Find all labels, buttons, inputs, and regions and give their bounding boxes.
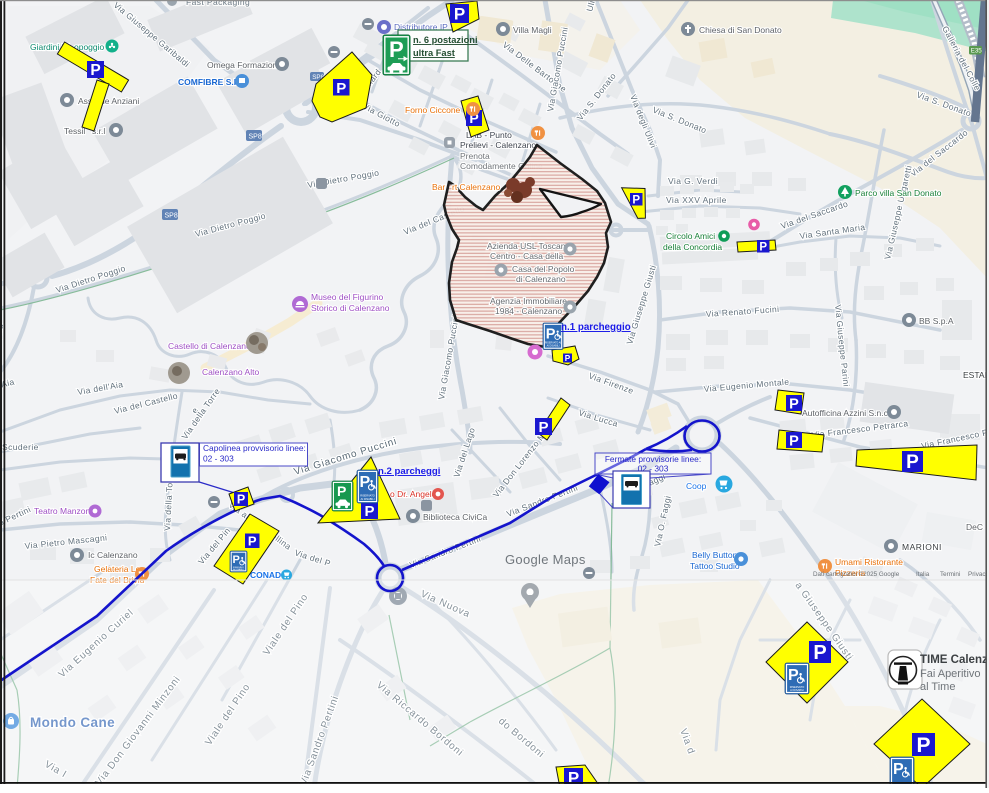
svg-text:n. 6 postazioni: n. 6 postazioni <box>413 35 478 45</box>
svg-text:SP8: SP8 <box>249 134 262 141</box>
svg-text:ne Anziani: ne Anziani <box>100 96 139 106</box>
svg-text:n.1 parcheggio: n.1 parcheggio <box>561 322 631 333</box>
svg-text:P: P <box>546 327 556 343</box>
svg-text:Storico di Calenzano: Storico di Calenzano <box>311 303 390 313</box>
svg-text:P: P <box>454 5 465 24</box>
svg-text:P: P <box>916 734 930 757</box>
svg-text:P: P <box>789 397 799 413</box>
svg-text:P: P <box>90 62 100 79</box>
svg-text:P: P <box>565 354 571 363</box>
svg-text:Centro - Casa della: Centro - Casa della <box>490 251 564 261</box>
svg-text:TIME Calenzan: TIME Calenzan <box>920 654 989 666</box>
svg-text:Termini: Termini <box>940 571 960 578</box>
svg-text:Castello di Calenzano: Castello di Calenzano <box>168 341 251 351</box>
svg-text:P: P <box>336 80 346 97</box>
svg-text:di Calenzano: di Calenzano <box>516 274 566 284</box>
svg-text:Biblioteca CiviCa: Biblioteca CiviCa <box>423 512 488 522</box>
svg-text:MARIONI: MARIONI <box>902 542 942 552</box>
svg-text:02 - 303: 02 - 303 <box>203 454 234 464</box>
svg-text:Capolinea provvisorio linee:: Capolinea provvisorio linee: <box>203 443 306 453</box>
svg-text:DeC: DeC <box>966 522 983 532</box>
svg-text:Azienda USL Toscana: Azienda USL Toscana <box>487 241 570 251</box>
svg-text:Umami Ristorante: Umami Ristorante <box>835 557 903 567</box>
svg-text:P: P <box>237 493 245 507</box>
svg-text:AI DISABILI: AI DISABILI <box>361 497 375 501</box>
svg-text:P: P <box>364 503 374 520</box>
svg-text:n.2 parcheggi: n.2 parcheggi <box>378 466 440 477</box>
svg-text:SP8: SP8 <box>165 213 178 220</box>
svg-text:Belly Button: Belly Button <box>692 550 738 560</box>
svg-text:Calenzano Alto: Calenzano Alto <box>202 367 259 377</box>
svg-text:Google Maps: Google Maps <box>505 552 586 567</box>
svg-text:Coop: Coop <box>686 481 707 491</box>
svg-text:Casa del Popolo: Casa del Popolo <box>512 264 575 274</box>
svg-text:Circolo Amici: Circolo Amici <box>666 231 715 241</box>
svg-text:P: P <box>337 483 346 499</box>
svg-text:P: P <box>813 642 826 664</box>
svg-text:Autofficina Azzini S.n.c: Autofficina Azzini S.n.c <box>802 408 889 418</box>
svg-text:Chiesa di San Donato: Chiesa di San Donato <box>699 25 782 35</box>
svg-text:BB S.p.A: BB S.p.A <box>919 316 954 326</box>
svg-text:Fai Aperitivo: Fai Aperitivo <box>920 668 981 680</box>
svg-text:Forno Ciccone: Forno Ciccone <box>405 105 461 115</box>
svg-text:della Concordia: della Concordia <box>663 242 722 252</box>
svg-text:P: P <box>538 419 548 436</box>
svg-text:Agenzia Immobiliare: Agenzia Immobiliare <box>490 296 567 306</box>
svg-text:Bar: Bar <box>432 182 445 192</box>
svg-text:Prenota: Prenota <box>460 151 490 161</box>
svg-text:AI DISABILI: AI DISABILI <box>233 568 244 571</box>
svg-text:Fermate provvisorie linee:: Fermate provvisorie linee: <box>605 454 701 464</box>
svg-text:rt Calenzano: rt Calenzano <box>452 182 500 192</box>
svg-text:Via G. Verdi: Via G. Verdi <box>668 176 718 186</box>
svg-text:RISERVATO: RISERVATO <box>360 494 375 498</box>
svg-text:Scuderie: Scuderie <box>2 442 39 452</box>
svg-text:Italia: Italia <box>916 571 930 578</box>
svg-text:ESTAR: ESTAR <box>963 370 989 380</box>
svg-text:CONAD: CONAD <box>250 570 281 580</box>
svg-text:Dati cartografici ©2025 Google: Dati cartografici ©2025 Google <box>813 570 900 578</box>
svg-text:o Dr. Angelo: o Dr. Angelo <box>390 489 437 499</box>
svg-text:E35: E35 <box>971 48 983 55</box>
svg-text:al Time: al Time <box>920 681 955 693</box>
svg-text:Tattoo Studio: Tattoo Studio <box>690 561 740 571</box>
svg-text:P: P <box>248 534 257 549</box>
svg-text:AI DISABILI: AI DISABILI <box>547 344 560 347</box>
svg-text:Villa Magli: Villa Magli <box>513 25 552 35</box>
svg-text:Teatro Manzoni: Teatro Manzoni <box>34 506 92 516</box>
svg-text:Parco villa San Donato: Parco villa San Donato <box>855 188 942 198</box>
svg-text:1984 - Calenzano: 1984 - Calenzano <box>495 306 562 316</box>
svg-text:Museo del Figurino: Museo del Figurino <box>311 292 384 302</box>
svg-text:Gelateria Le: Gelateria Le <box>94 564 141 574</box>
svg-text:P: P <box>789 434 799 450</box>
svg-text:Ic Calenzano: Ic Calenzano <box>88 550 138 560</box>
svg-text:Prelievi - Calenzano: Prelievi - Calenzano <box>460 140 536 150</box>
svg-text:Omega Formazione: Omega Formazione <box>207 60 282 70</box>
svg-text:P: P <box>632 195 640 207</box>
svg-text:P: P <box>233 554 240 566</box>
svg-text:ultra Fast: ultra Fast <box>413 48 455 58</box>
svg-text:Via XXV Aprile: Via XXV Aprile <box>666 195 727 205</box>
svg-text:P: P <box>906 452 919 473</box>
svg-text:AI DISABILI: AI DISABILI <box>790 688 804 692</box>
svg-text:P: P <box>759 242 767 254</box>
